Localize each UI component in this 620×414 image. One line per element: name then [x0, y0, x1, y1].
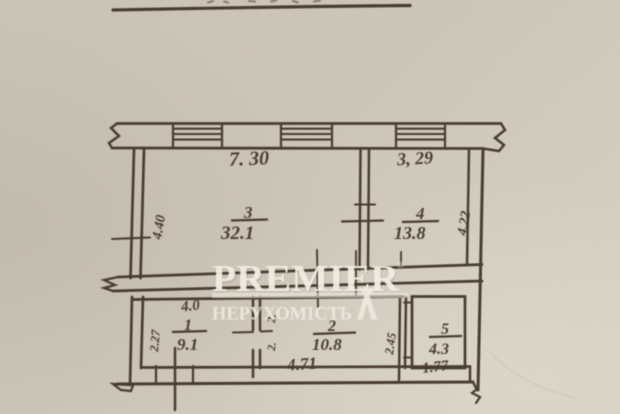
svg-text:4.3: 4.3: [428, 341, 449, 358]
svg-text:4.71: 4.71: [286, 354, 318, 375]
svg-text:1.77: 1.77: [421, 358, 449, 377]
svg-text:4.0: 4.0: [179, 297, 201, 315]
svg-text:32.1: 32.1: [220, 223, 254, 244]
svg-text:НЕРУХОМІСТЬ: НЕРУХОМІСТЬ: [212, 304, 352, 325]
svg-text:13.8: 13.8: [394, 223, 426, 243]
svg-text:4: 4: [415, 204, 425, 223]
svg-text:PREMIER: PREMIER: [212, 258, 400, 300]
svg-text:®: ®: [397, 260, 404, 270]
svg-text:3, 29: 3, 29: [396, 147, 434, 169]
svg-text:10.8: 10.8: [312, 335, 342, 354]
svg-text:7. 30: 7. 30: [229, 147, 270, 170]
svg-text:2.27: 2.27: [147, 329, 163, 354]
svg-text:9.1: 9.1: [177, 335, 198, 354]
svg-text:2.: 2.: [266, 342, 279, 353]
